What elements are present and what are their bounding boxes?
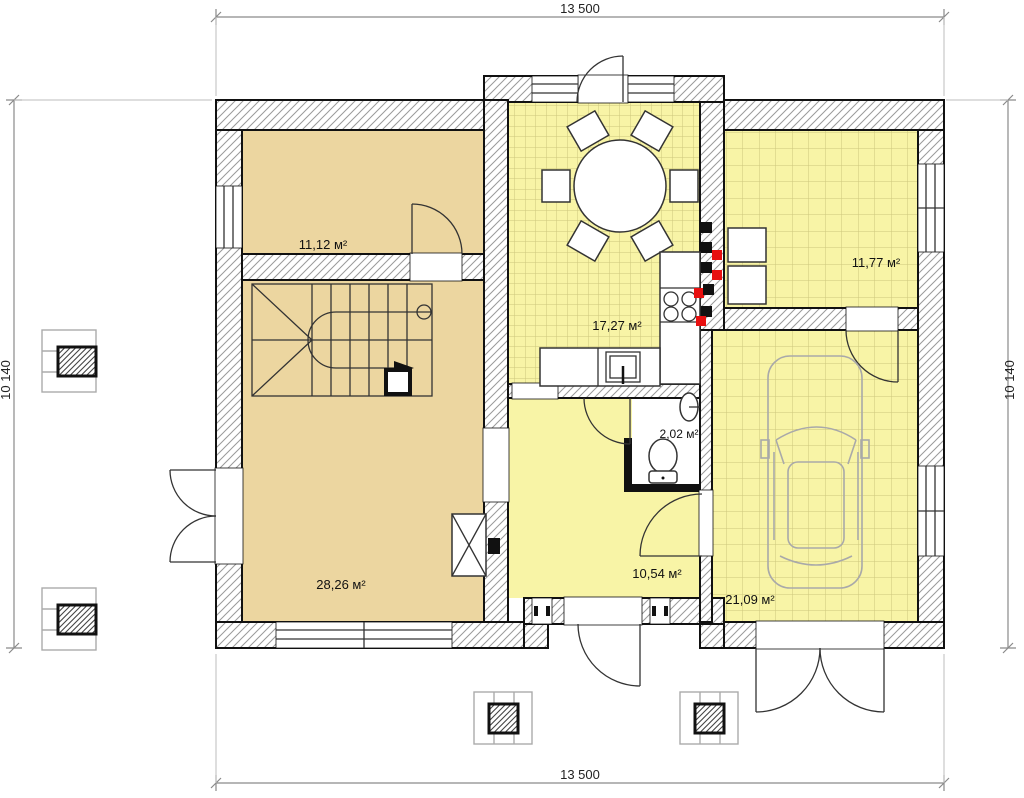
opening-top-entry [578,75,628,103]
opening-roomC-garage-door [846,307,898,331]
wall-hall-garage [700,330,712,622]
opening-french-doors [215,468,243,564]
dim-bottom-label: 13 500 [560,767,600,782]
garage-label: 21,09 м² [725,592,775,607]
room-top-right-label: 11,77 м² [852,255,901,270]
floor-plan-page: 13 500 13 500 10 140 10 140 11,12 м² 17,… [0,0,1024,798]
window-bottom-living [276,622,452,648]
floor-plan-drawing: 13 500 13 500 10 140 10 140 11,12 м² 17,… [0,0,1024,798]
dim-top-label: 13 500 [560,1,600,16]
dim-left: 10 140 [0,95,212,653]
dim-right-label: 10 140 [1002,360,1017,400]
dining-table [574,140,666,232]
door-bottom-entry [578,624,640,686]
opening-roomA-door [410,253,462,281]
dining-chair [670,170,698,202]
wall-wc-bottom [624,484,700,492]
stair-column [386,370,410,394]
room-top-right-cabinets [728,228,766,304]
opening-living-hall [483,428,509,502]
living-label: 28,26 м² [316,577,366,592]
wc-label: 2,02 м² [660,427,699,441]
window-top-left [532,76,578,102]
room-top-left-floor [242,130,484,254]
garage-tile-grid [712,330,918,622]
window-porch-left [532,598,552,624]
door-french-terrace [170,470,216,562]
dim-left-label: 10 140 [0,360,13,400]
opening-hall-garage-door [699,490,713,556]
wall-top-right [724,100,944,130]
hall-label: 10,54 м² [632,566,682,581]
toilet [649,439,677,483]
pier-bottom-left [474,692,532,744]
pier-left-top [42,330,96,392]
wall-top-left [216,100,484,130]
dim-bottom: 13 500 [211,654,949,791]
dim-right: 10 140 [946,95,1017,653]
kitchen-dining-label: 17,27 м² [592,318,642,333]
wall-left-exterior [216,100,242,648]
living-room-floor [242,280,484,622]
window-left-roomA [216,186,242,248]
dining-chair [542,170,570,202]
kitchen-counter-bottom [540,348,660,386]
window-right-roomC [918,164,944,252]
window-right-garage [918,466,944,556]
room-top-left-label: 11,12 м² [299,237,348,252]
wall-porch-stub-right [700,624,724,648]
window-porch-right [650,598,670,624]
window-top-right [628,76,674,102]
pier-bottom-right [680,692,738,744]
wall-porch-stub-left [524,624,548,648]
opening-bottom-entry [564,597,642,625]
opening-garage-gate [756,621,884,649]
door-garage-gate [756,648,884,712]
wall-wc-left [624,438,632,492]
pier-left-bottom [42,588,96,650]
